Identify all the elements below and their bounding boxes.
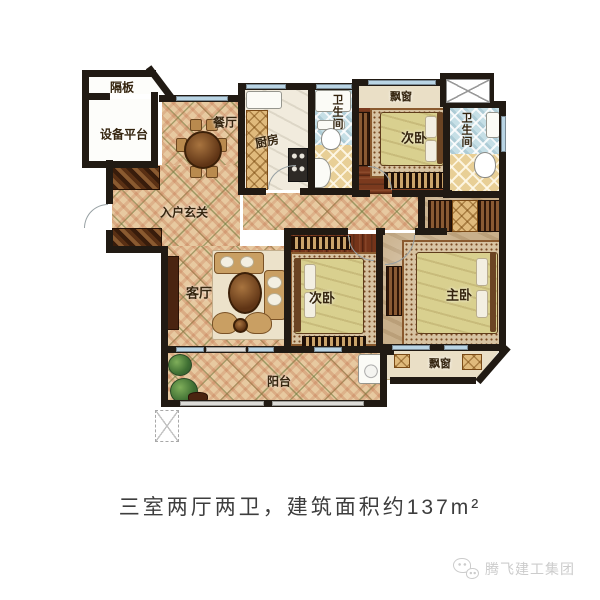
wall <box>238 95 245 193</box>
master-headboard <box>490 252 496 332</box>
armchair <box>244 312 272 334</box>
wall <box>82 70 89 168</box>
hallway-floor <box>243 193 443 230</box>
baywindow-decor <box>394 354 410 368</box>
room-label-equipment-platform: 设备平台 <box>100 126 148 143</box>
pillow <box>476 258 488 286</box>
wall <box>106 246 168 253</box>
balcony-railing <box>180 401 264 406</box>
window <box>368 80 436 85</box>
window <box>176 96 228 101</box>
kitchen-sink <box>246 91 282 109</box>
sofa-cushion <box>267 276 282 289</box>
wall <box>390 377 476 384</box>
wall <box>284 228 348 235</box>
room-label-bathroom2: 卫生间 <box>458 112 474 148</box>
balcony-plant <box>168 354 192 376</box>
entry-mat <box>112 228 162 247</box>
room-label-entry-foyer: 入户玄关 <box>160 204 208 221</box>
window <box>501 116 506 152</box>
baywindow-decor <box>462 354 482 370</box>
wall <box>352 83 359 194</box>
master-wardrobe <box>478 200 501 232</box>
sofa-cushion <box>240 256 254 268</box>
window <box>248 347 274 352</box>
room-label-bedroom2: 次卧 <box>401 128 427 147</box>
pillow <box>304 264 316 290</box>
entry-mat <box>112 166 160 190</box>
wall <box>352 190 370 197</box>
room-label-bathroom1: 卫生间 <box>329 94 345 130</box>
toilet <box>321 128 341 150</box>
entry-door-swing <box>84 204 108 228</box>
sliding-door <box>206 347 246 352</box>
sofa-cushion <box>220 256 234 268</box>
room-label-bedroom3: 次卧 <box>309 288 335 307</box>
window <box>314 347 342 352</box>
wall <box>300 188 358 195</box>
ac-platform <box>155 410 179 442</box>
bedroom2-dresser <box>384 172 448 189</box>
room-label-partition: 隔板 <box>110 79 134 96</box>
room-label-master-bedroom: 主卧 <box>446 285 472 304</box>
wall <box>82 93 110 100</box>
bedroom3-wardrobe <box>291 236 351 250</box>
pillow <box>476 290 488 318</box>
room-label-baywindow-bottom: 飘窗 <box>429 355 451 371</box>
room-label-living: 客厅 <box>186 283 212 302</box>
master-side-wardrobe <box>386 266 402 316</box>
wall <box>151 92 158 168</box>
unit-summary-caption: 三室两厅两卫，建筑面积约137m² <box>0 491 600 521</box>
wall <box>443 107 450 197</box>
room-label-baywindow-top: 飘窗 <box>390 88 412 104</box>
wall <box>376 233 383 348</box>
wall <box>380 350 387 407</box>
window <box>246 84 286 89</box>
window <box>392 345 430 350</box>
wall <box>415 228 447 235</box>
sofa-cushion <box>267 293 282 306</box>
wall <box>82 70 156 77</box>
wall <box>238 188 266 195</box>
window <box>444 345 468 350</box>
wall <box>308 83 315 191</box>
wall <box>161 246 168 407</box>
window <box>176 347 204 352</box>
dining-chair <box>190 119 202 131</box>
floorplan-screenshot: 隔板 设备平台 餐厅 厨房 卫生间 飘窗 次卧 卫生间 入户玄关 客厅 次卧 主… <box>0 0 600 600</box>
side-table <box>233 318 248 333</box>
bedroom3-headboard <box>294 258 301 332</box>
balcony-railing <box>272 401 364 406</box>
bathroom2-vanity <box>486 112 500 138</box>
window <box>316 84 352 89</box>
room-label-balcony: 阳台 <box>267 373 291 390</box>
coffee-table <box>228 272 262 314</box>
toilet <box>474 152 496 178</box>
wall <box>106 160 113 204</box>
watermark-brand-text: 腾飞建工集团 <box>485 559 575 579</box>
wall <box>284 228 291 348</box>
dining-table <box>184 131 222 169</box>
room-label-dining: 餐厅 <box>213 114 237 131</box>
wall <box>82 161 158 168</box>
wall <box>443 191 505 198</box>
tv-cabinet <box>167 256 179 330</box>
elevator-shaft <box>446 79 490 103</box>
master-dresser <box>452 200 478 232</box>
watermark: 腾飞建工集团 <box>453 558 575 579</box>
wechat-icon <box>453 558 479 579</box>
